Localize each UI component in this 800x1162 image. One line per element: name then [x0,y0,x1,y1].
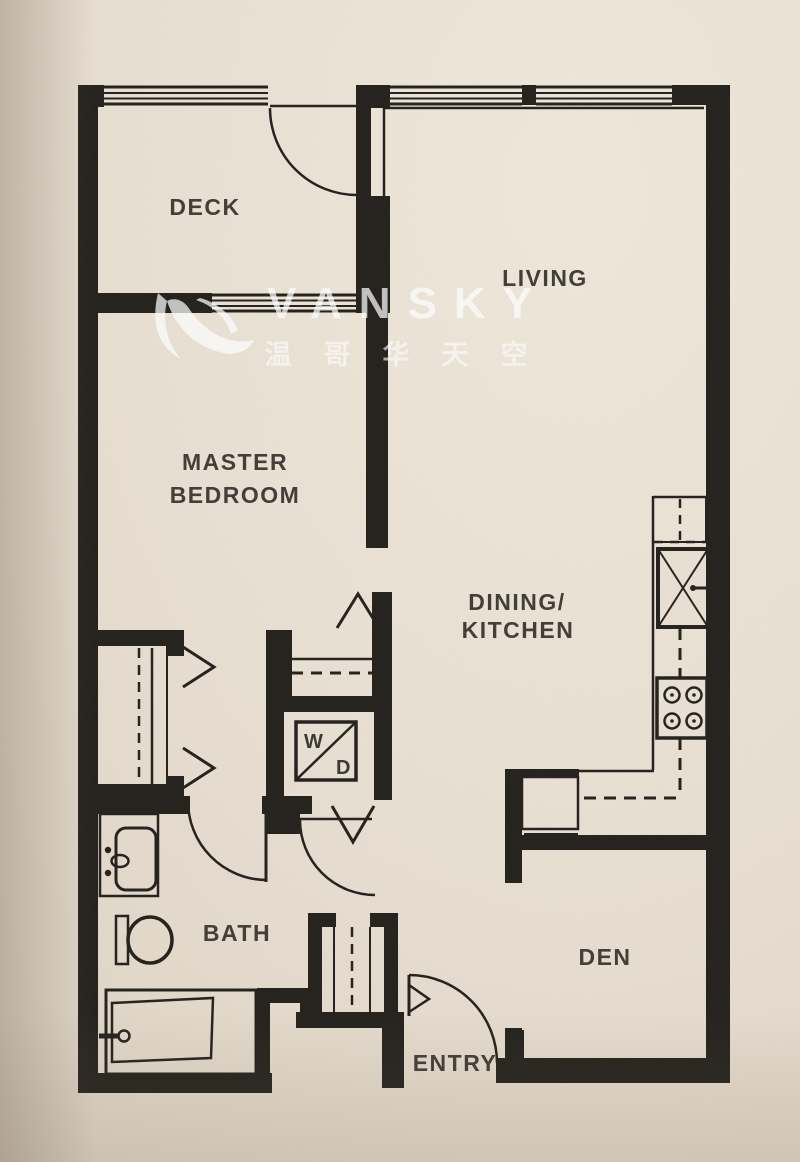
floorplan-svg: W D [0,0,800,1162]
grain-overlay [0,0,800,1162]
floorplan-page: W D [0,0,800,1162]
